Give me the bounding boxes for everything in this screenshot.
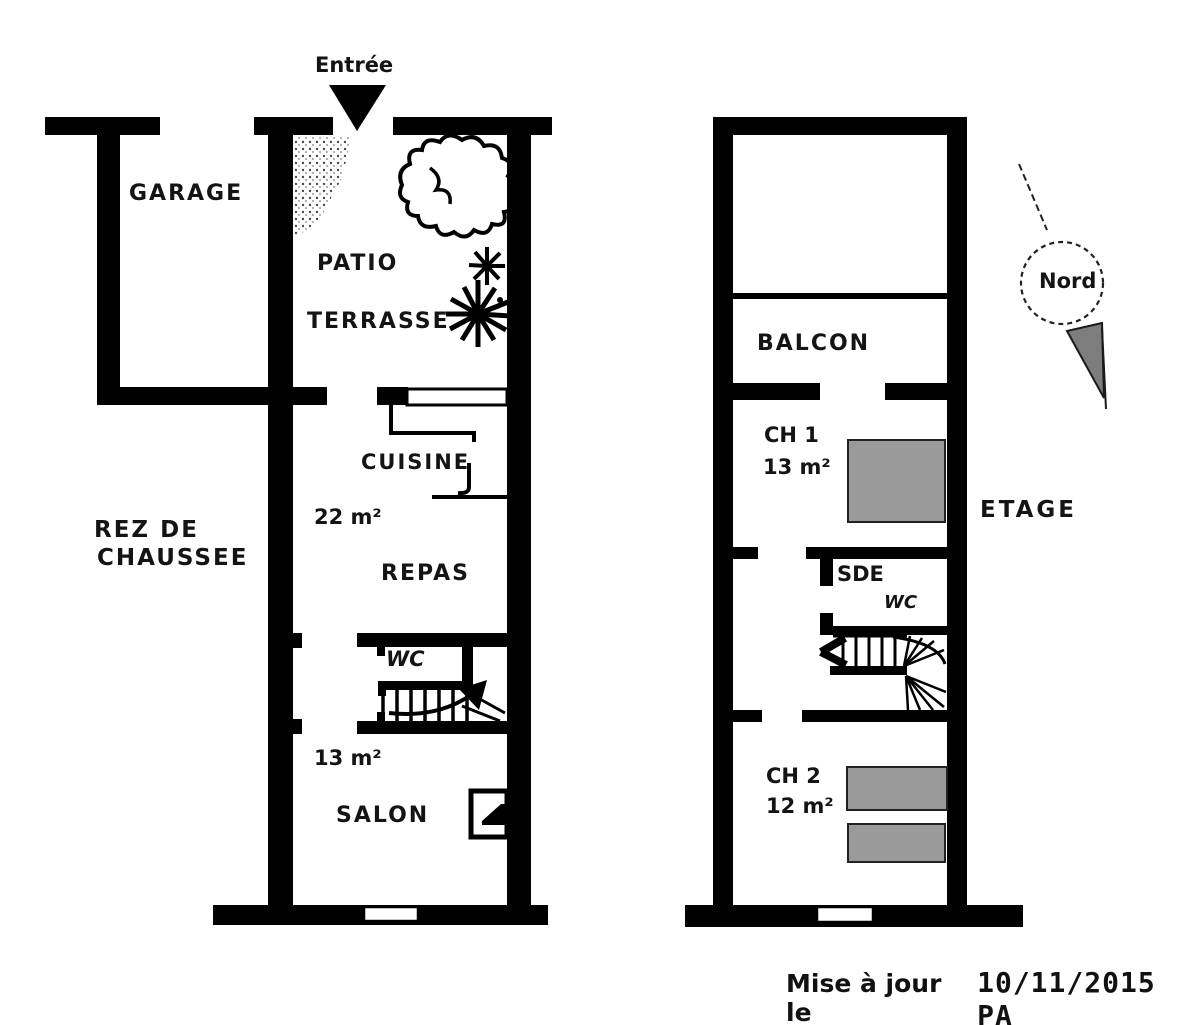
label-patio: PATIO bbox=[317, 253, 398, 275]
kitchen-window bbox=[407, 389, 507, 405]
label-etage: ETAGE bbox=[980, 499, 1077, 522]
label-balcon: BALCON bbox=[757, 333, 870, 355]
label-wc-upper: WC bbox=[884, 594, 917, 612]
label-ch1: CH 1 bbox=[764, 425, 819, 446]
bed-ch2-2 bbox=[848, 824, 945, 862]
fireplace-icon bbox=[471, 791, 507, 837]
footer-updated-date: 10/11/2015 PA bbox=[977, 966, 1200, 1025]
label-entree: Entrée bbox=[315, 55, 393, 76]
ch2-window bbox=[817, 907, 873, 922]
plant-burst-small bbox=[469, 247, 505, 285]
bed-ch2-1 bbox=[847, 767, 947, 810]
label-cuisine: CUISINE bbox=[361, 452, 470, 473]
salon-window bbox=[364, 907, 418, 921]
compass-arrowhead bbox=[1067, 323, 1104, 398]
entrance-arrow-icon bbox=[329, 85, 386, 131]
label-ch2: CH 2 bbox=[766, 766, 821, 787]
plant-burst-large bbox=[446, 280, 512, 347]
bush-outline bbox=[400, 135, 516, 236]
compass-needle-line bbox=[1019, 164, 1047, 230]
label-ch2-area: 12 m² bbox=[766, 796, 834, 817]
label-cuisine-area: 22 m² bbox=[314, 507, 382, 528]
balcony-divider bbox=[733, 293, 947, 299]
label-nord: Nord bbox=[1039, 271, 1096, 292]
label-floor-ground-line2: CHAUSSEE bbox=[97, 547, 248, 570]
gravel-texture bbox=[294, 136, 352, 238]
label-salon: SALON bbox=[336, 805, 429, 827]
label-garage: GARAGE bbox=[129, 183, 243, 205]
label-wc-ground: WC bbox=[386, 649, 425, 670]
label-floor-ground-line1: REZ DE bbox=[94, 519, 199, 542]
label-sde: SDE bbox=[837, 564, 884, 585]
floor-plan-canvas: Entrée GARAGE PATIO TERRASSE CUISINE 22 … bbox=[0, 0, 1200, 1025]
beds bbox=[847, 440, 947, 862]
label-repas: REPAS bbox=[381, 563, 470, 585]
footer-updated-prefix: Mise à jour le bbox=[786, 969, 968, 1025]
footer-updated: Mise à jour le 10/11/2015 PA bbox=[786, 966, 1200, 1025]
label-salon-area: 13 m² bbox=[314, 748, 382, 769]
upper-floor-windows bbox=[817, 907, 873, 922]
bed-ch1 bbox=[848, 440, 945, 522]
label-ch1-area: 13 m² bbox=[763, 457, 831, 478]
label-terrasse: TERRASSE bbox=[307, 311, 450, 333]
